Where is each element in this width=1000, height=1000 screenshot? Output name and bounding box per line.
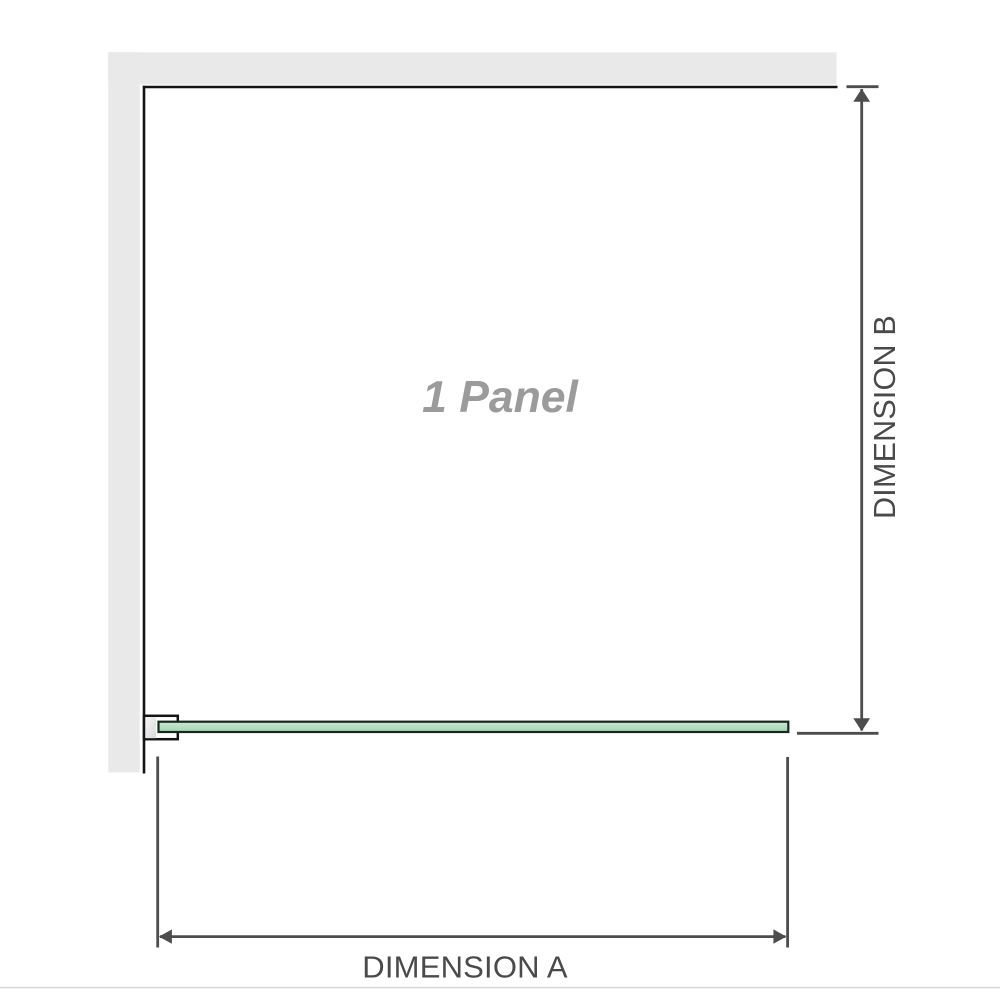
svg-text:DIMENSION A: DIMENSION A <box>362 950 568 985</box>
svg-text:1 Panel: 1 Panel <box>422 373 579 422</box>
svg-text:DIMENSION B: DIMENSION B <box>868 315 902 519</box>
